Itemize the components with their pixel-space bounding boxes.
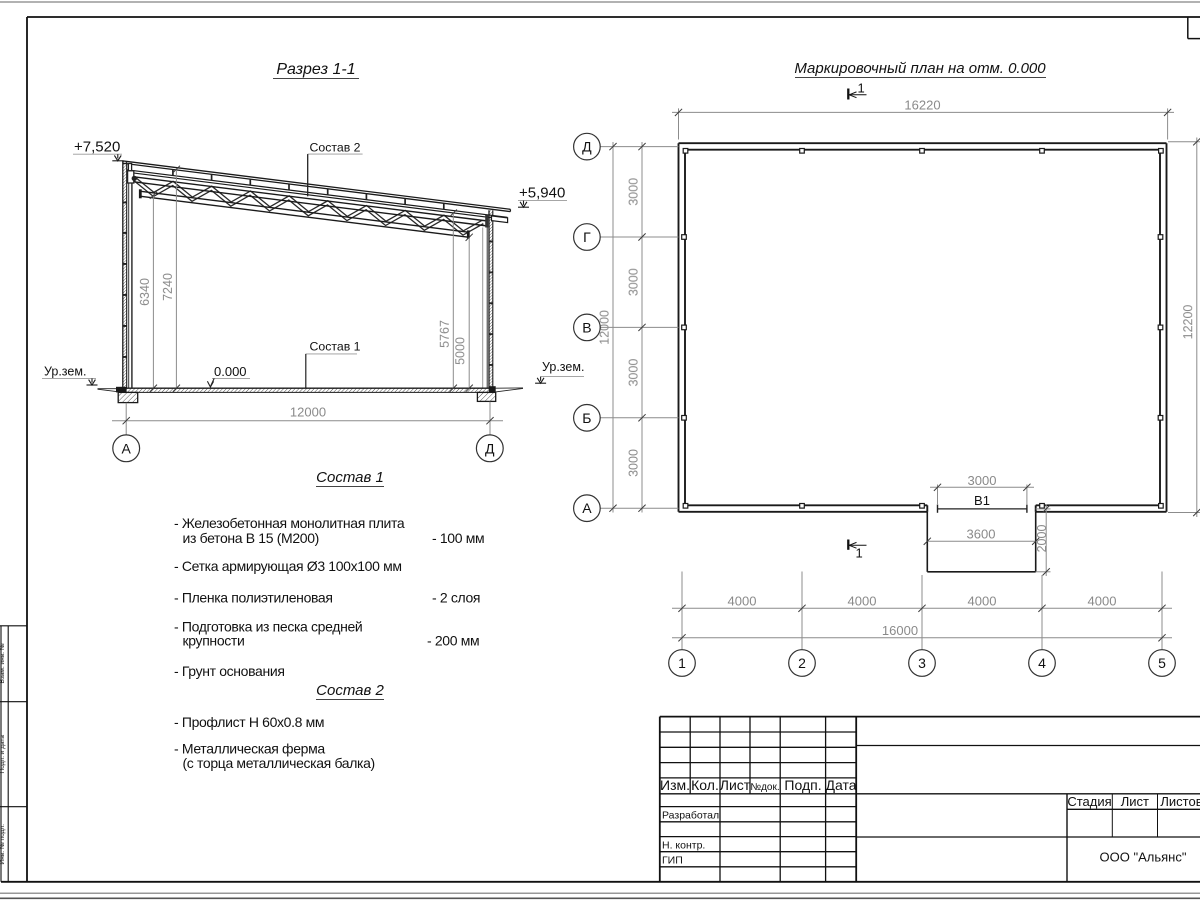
svg-text:12200: 12200 bbox=[1181, 305, 1195, 340]
svg-text:16220: 16220 bbox=[904, 98, 940, 113]
svg-text:№док.: №док. bbox=[750, 782, 779, 793]
svg-text:Состав 2: Состав 2 bbox=[310, 141, 361, 155]
svg-text:Г: Г bbox=[583, 229, 591, 245]
svg-text:3000: 3000 bbox=[627, 359, 641, 387]
svg-text:5000: 5000 bbox=[453, 337, 467, 365]
svg-text:5767: 5767 bbox=[438, 320, 452, 348]
svg-text:12000: 12000 bbox=[290, 405, 326, 420]
svg-text:4000: 4000 bbox=[1088, 593, 1117, 608]
svg-text:из бетона В 15 (М200): из бетона В 15 (М200) bbox=[183, 530, 319, 546]
svg-text:2000: 2000 bbox=[1035, 525, 1049, 553]
svg-text:Дата: Дата bbox=[825, 777, 856, 793]
svg-text:- Сетка армирующая Ø3 100х100: - Сетка армирующая Ø3 100х100 мм bbox=[174, 558, 402, 574]
svg-text:- Железобетонная монолитная п: - Железобетонная монолитная плита bbox=[174, 515, 405, 531]
svg-text:Подп. и дата: Подп. и дата bbox=[0, 735, 6, 774]
svg-text:- 200 мм: - 200 мм bbox=[427, 633, 479, 649]
svg-text:А: А bbox=[582, 500, 592, 516]
svg-text:16000: 16000 bbox=[882, 623, 918, 638]
svg-text:Д: Д bbox=[582, 139, 592, 155]
svg-text:Д: Д bbox=[485, 440, 495, 456]
svg-text:1: 1 bbox=[678, 655, 686, 671]
svg-text:Взам. инв. №: Взам. инв. № bbox=[0, 643, 6, 683]
svg-text:ООО "Альянс": ООО "Альянс" bbox=[1100, 850, 1187, 865]
svg-text:Кол.: Кол. bbox=[691, 777, 719, 793]
svg-text:7240: 7240 bbox=[161, 273, 175, 301]
svg-text:5: 5 bbox=[1158, 655, 1166, 671]
svg-text:Состав 2: Состав 2 bbox=[316, 682, 384, 699]
svg-text:- Профлист Н 60х0.8 мм: - Профлист Н 60х0.8 мм bbox=[174, 714, 324, 730]
svg-text:(с торца металлическая балка): (с торца металлическая балка) bbox=[183, 755, 375, 771]
svg-text:Разработал: Разработал bbox=[662, 810, 719, 822]
svg-text:3000: 3000 bbox=[627, 449, 641, 477]
svg-text:Ур.зем.: Ур.зем. bbox=[44, 365, 86, 379]
svg-text:3000: 3000 bbox=[968, 473, 997, 488]
svg-text:Инв. № подл.: Инв. № подл. bbox=[0, 824, 6, 865]
svg-text:4000: 4000 bbox=[848, 593, 877, 608]
svg-text:Разрез 1-1: Разрез 1-1 bbox=[276, 61, 355, 78]
svg-text:4: 4 bbox=[1038, 655, 1046, 671]
svg-text:ГИП: ГИП bbox=[662, 854, 683, 866]
svg-text:Изм.: Изм. bbox=[660, 777, 690, 793]
svg-text:4000: 4000 bbox=[728, 593, 757, 608]
svg-text:Стадия: Стадия bbox=[1067, 794, 1111, 809]
svg-text:3: 3 bbox=[918, 655, 926, 671]
svg-text:Б: Б bbox=[582, 410, 591, 426]
svg-text:6340: 6340 bbox=[138, 278, 152, 306]
svg-text:1: 1 bbox=[858, 81, 865, 96]
svg-text:4000: 4000 bbox=[968, 593, 997, 608]
svg-text:А: А bbox=[122, 440, 132, 456]
svg-text:Лист: Лист bbox=[1121, 794, 1149, 809]
svg-text:0.000: 0.000 bbox=[214, 364, 247, 379]
svg-text:Состав 1: Состав 1 bbox=[310, 340, 361, 354]
svg-text:крупности: крупности bbox=[183, 633, 245, 649]
svg-text:+5,940: +5,940 bbox=[519, 185, 565, 202]
svg-text:3000: 3000 bbox=[627, 178, 641, 206]
svg-text:В: В bbox=[582, 319, 591, 335]
svg-text:3000: 3000 bbox=[627, 268, 641, 296]
svg-text:1: 1 bbox=[856, 546, 863, 561]
svg-text:2: 2 bbox=[798, 655, 806, 671]
svg-text:+7,520: +7,520 bbox=[74, 139, 120, 156]
svg-text:Лист: Лист bbox=[720, 777, 751, 793]
svg-text:3600: 3600 bbox=[967, 526, 996, 541]
svg-text:- 100 мм: - 100 мм bbox=[432, 530, 484, 546]
svg-text:Листов: Листов bbox=[1160, 794, 1200, 809]
svg-text:Состав 1: Состав 1 bbox=[316, 469, 384, 486]
svg-text:- 2 слоя: - 2 слоя bbox=[432, 590, 480, 606]
svg-text:В1: В1 bbox=[974, 493, 990, 508]
svg-text:Н. контр.: Н. контр. bbox=[662, 839, 705, 851]
svg-text:Подп.: Подп. bbox=[784, 777, 821, 793]
svg-text:Маркировочный план на отм. 0.0: Маркировочный план на отм. 0.000 bbox=[794, 60, 1046, 77]
svg-text:- Грунт основания: - Грунт основания bbox=[174, 663, 285, 679]
svg-text:- Пленка полиэтиленовая: - Пленка полиэтиленовая bbox=[174, 590, 333, 606]
svg-text:Ур.зем.: Ур.зем. bbox=[542, 360, 584, 374]
